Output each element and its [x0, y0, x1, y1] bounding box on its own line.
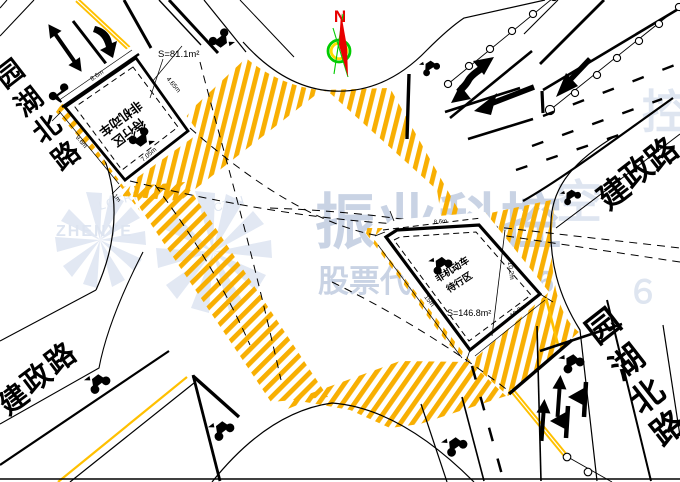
svg-text:ZHENYE: ZHENYE: [56, 223, 133, 240]
svg-text:S=81.1m²: S=81.1m²: [158, 49, 199, 60]
svg-text:S=146.8m²: S=146.8m²: [447, 308, 491, 318]
svg-text:控: 控: [642, 86, 680, 138]
svg-text:６: ６: [627, 274, 659, 310]
svg-text:N: N: [334, 7, 346, 26]
svg-text:空: 空: [556, 176, 602, 228]
